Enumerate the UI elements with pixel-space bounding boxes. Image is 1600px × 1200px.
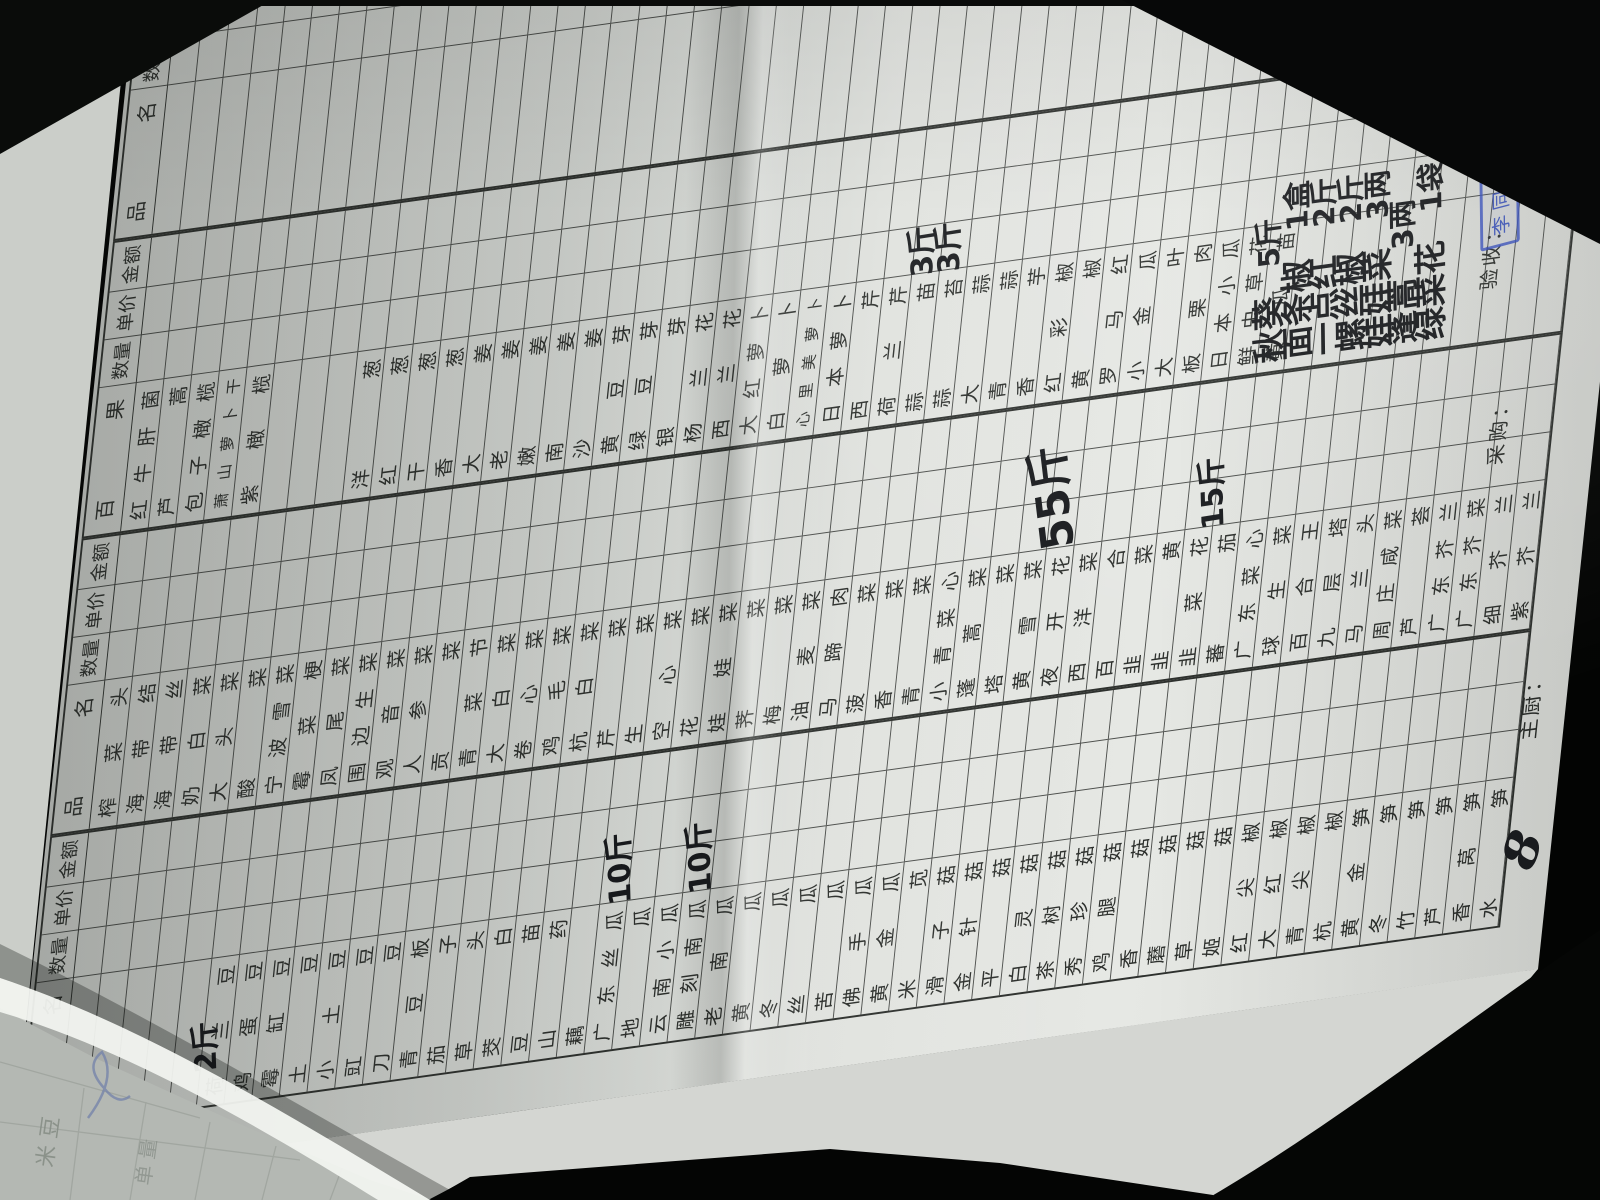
char: 药	[542, 917, 572, 941]
char: 菜	[186, 674, 216, 698]
char: 苗	[910, 280, 940, 304]
char: 菜	[269, 662, 299, 686]
char: 广	[1227, 638, 1257, 662]
char: 尖	[1284, 869, 1314, 893]
char: 洋	[344, 468, 374, 492]
item-price-cell	[1242, 716, 1274, 767]
item-qty-cell	[936, 512, 968, 563]
char: 豆	[210, 964, 240, 988]
char: 苦	[807, 989, 837, 1013]
char: 围	[340, 761, 370, 785]
char: 彩	[1042, 316, 1072, 340]
char: 豆	[398, 992, 428, 1016]
char: 额	[117, 244, 145, 267]
item-price-cell	[277, 557, 309, 608]
char: 金	[115, 263, 143, 286]
char: 观	[368, 757, 398, 781]
handwritten-quantity: 3斤	[934, 219, 965, 275]
char: 黄	[1005, 669, 1035, 693]
char: 菜	[1177, 590, 1207, 614]
char: 豆	[627, 374, 657, 398]
char: 空	[645, 719, 675, 743]
char: 荷	[870, 394, 900, 418]
char: 芹	[854, 288, 884, 312]
char: 蒿	[162, 384, 192, 408]
char: 价	[112, 292, 140, 315]
char: 生	[348, 688, 378, 712]
char: 芥	[1428, 537, 1458, 561]
char: 名	[131, 100, 162, 125]
char: 白	[568, 675, 598, 699]
char: 心	[934, 570, 964, 594]
char: 周	[1365, 619, 1395, 643]
char: 尾	[318, 710, 348, 734]
item-name-cell	[1565, 0, 1600, 37]
char: 菜	[324, 655, 354, 679]
char: 杭	[1306, 920, 1336, 944]
char: 小	[649, 939, 679, 963]
char: 罗	[1092, 363, 1122, 387]
char: 兰	[682, 366, 712, 390]
char: 针	[952, 915, 982, 939]
item-qty-cell	[608, 265, 640, 316]
char: 丝	[780, 993, 810, 1017]
char: 菜	[1072, 551, 1102, 575]
char: 蒜	[965, 272, 995, 296]
char: 豆	[265, 956, 295, 980]
char: 兰	[1515, 489, 1545, 513]
char: 马	[811, 696, 841, 720]
item-qty-cell	[1099, 783, 1131, 834]
handwritten-quantity: 55斤	[1024, 441, 1081, 554]
price-column-header: 单价	[105, 287, 146, 340]
char: 日	[815, 402, 845, 426]
char: 青	[981, 379, 1011, 403]
char: 马	[1098, 308, 1128, 332]
char: 瓜	[653, 902, 683, 926]
char: 青	[392, 1047, 422, 1071]
price-column-header: 单价	[136, 0, 177, 42]
char: 葱	[439, 346, 469, 370]
char: 鸡	[534, 734, 564, 758]
char: 菜	[767, 593, 797, 617]
char: 金	[1125, 304, 1155, 328]
char: 冬	[752, 997, 782, 1021]
char: 椒	[1262, 817, 1292, 841]
char: 菜	[1266, 524, 1296, 548]
char: 大	[953, 383, 983, 407]
char: 萝	[765, 355, 795, 379]
char: 霉	[254, 1066, 284, 1090]
item-price-cell	[969, 461, 1001, 512]
char: 果	[100, 398, 131, 423]
char: 椒	[1076, 257, 1106, 281]
char: 九	[1310, 626, 1340, 650]
char: 层	[1315, 571, 1345, 595]
char: 姬	[1195, 935, 1225, 959]
char: 东	[1230, 601, 1260, 625]
char: 椒	[1048, 261, 1078, 285]
char: 西	[1060, 661, 1090, 685]
qty-column-header: 数量	[131, 37, 172, 90]
char: 手	[841, 930, 871, 954]
char: 边	[344, 724, 374, 748]
char: 大	[1147, 356, 1177, 380]
item-qty-cell	[1518, 431, 1550, 482]
char: 豆	[599, 378, 629, 402]
char: 额	[55, 839, 83, 862]
char: 菇	[1068, 844, 1098, 868]
char: 瓜	[681, 898, 711, 922]
char: 大	[732, 414, 762, 438]
char: 菜	[740, 597, 770, 621]
char: 白	[487, 925, 517, 949]
char: 水	[1472, 897, 1502, 921]
char: 香	[1009, 375, 1039, 399]
char: 豆	[348, 944, 378, 968]
char: 洋	[1066, 606, 1096, 630]
char: 蒜	[898, 390, 928, 414]
char: 广	[586, 1020, 616, 1044]
item-price-cell	[494, 820, 526, 871]
char: 梗	[297, 659, 327, 683]
char: 量	[139, 43, 167, 66]
char: 葱	[356, 357, 386, 381]
qty-column-header: 数量	[37, 929, 78, 982]
char: 土	[281, 1063, 311, 1087]
char: 心	[512, 683, 542, 707]
char: 单	[79, 609, 107, 632]
char: 雪	[1011, 613, 1041, 637]
item-qty-cell	[390, 2, 422, 53]
char: 树	[1035, 903, 1065, 927]
item-price-cell	[1554, 86, 1586, 137]
char: 麦	[789, 644, 819, 668]
char: 凤	[313, 765, 343, 789]
char: 尖	[1229, 876, 1259, 900]
char: 嫩	[510, 444, 540, 468]
qty-column-header: 数量	[68, 632, 109, 685]
item-qty-cell	[279, 18, 311, 69]
char: 里	[793, 382, 818, 401]
char: 花	[1183, 535, 1213, 559]
item-price-cell	[221, 565, 253, 616]
char: 菇	[1124, 836, 1154, 860]
item-qty-cell	[462, 872, 494, 923]
char: 卜	[826, 292, 856, 316]
char: 菜	[1017, 558, 1047, 582]
char: 榄	[189, 380, 219, 404]
item-qty-cell	[881, 520, 913, 571]
char: 萝	[799, 324, 824, 343]
char: 蛋	[232, 1015, 262, 1039]
char: 红	[1036, 371, 1066, 395]
char: 名	[68, 695, 99, 720]
char: 荠	[728, 707, 758, 731]
item-price-cell	[332, 549, 364, 600]
item-price-cell	[1523, 384, 1555, 435]
char: 芹	[882, 284, 912, 308]
char: 带	[152, 733, 182, 757]
char: 荟	[1404, 504, 1434, 528]
char: 银	[649, 425, 679, 449]
char: 百	[1088, 657, 1118, 681]
char: 结	[130, 682, 160, 706]
char: 海	[119, 792, 149, 816]
char: 单	[48, 906, 76, 929]
char: 芋	[1020, 265, 1050, 289]
char: 菠	[839, 692, 869, 716]
char: 菇	[1013, 852, 1043, 876]
char: 佛	[835, 985, 865, 1009]
char: 菜	[435, 639, 465, 663]
char: 芦	[1393, 615, 1423, 639]
char: 丝	[158, 678, 188, 702]
char: 红	[122, 498, 152, 522]
char: 菌	[134, 388, 164, 412]
paper-sheet: 品 名数量单价金 额荷兰豆鸡蛋豆霉缸豆土豆小土豆豇豆刀豆青豆板茄子草头茭白豆苗山…	[10, 0, 1600, 1182]
char: 缸	[259, 1011, 289, 1035]
char: 奶	[174, 784, 204, 808]
char: 西	[843, 398, 873, 422]
table-row	[1565, 0, 1600, 37]
char: 萝	[739, 340, 769, 364]
char: 栗	[1181, 297, 1211, 321]
char: 小	[1119, 360, 1149, 384]
char: 瓜	[764, 887, 794, 911]
order-table: 品 名数量单价金 额荷兰豆鸡蛋豆霉缸豆土豆小土豆豇豆刀豆青豆板茄子草头茭白豆苗山…	[19, 0, 1600, 1134]
char: 紫	[1503, 599, 1533, 623]
item-qty-cell	[663, 257, 695, 308]
char: 瓜	[708, 894, 738, 918]
char: 红	[372, 464, 402, 488]
char: 金	[1339, 861, 1369, 885]
char: 蹄	[817, 640, 847, 664]
char: 鸡	[226, 1070, 256, 1094]
char: 菜	[961, 566, 991, 590]
char: 地	[614, 1016, 644, 1040]
char: 白	[180, 729, 210, 753]
char: 百	[1282, 630, 1312, 654]
amount-column-header: 金 额	[110, 238, 151, 292]
char: 菜	[629, 612, 659, 636]
char: 菇	[1151, 833, 1181, 857]
char: 干	[220, 377, 245, 396]
char: 参	[402, 698, 432, 722]
char: 花	[1044, 554, 1074, 578]
char: 豆	[293, 952, 323, 976]
char: 菜	[457, 691, 487, 715]
char: 韭	[1143, 649, 1173, 673]
char: 头	[459, 929, 489, 953]
char: 开	[1039, 610, 1069, 634]
char: 日	[1203, 348, 1233, 372]
item-qty-cell	[406, 879, 438, 930]
char: 带	[125, 737, 155, 761]
char: 花	[716, 307, 746, 331]
char: 瓜	[598, 910, 628, 934]
char: 土	[315, 1004, 345, 1028]
char: 数	[74, 656, 102, 679]
handwritten-item-name: 绿菜花	[1404, 238, 1452, 344]
char: 红	[1103, 253, 1133, 277]
char: 青	[451, 746, 481, 770]
char: 雪	[265, 699, 295, 723]
char: 金	[946, 970, 976, 994]
handwritten-item-qty: 1袋	[1407, 160, 1450, 215]
char: 夜	[1033, 665, 1063, 689]
char: 娃	[700, 711, 730, 735]
char: 头	[103, 686, 133, 710]
char: 瓜	[874, 871, 904, 895]
char: 山	[530, 1028, 560, 1052]
char: 笋	[1484, 786, 1514, 810]
char: 南	[538, 441, 568, 465]
char: 芦	[150, 495, 180, 519]
char: 卜	[217, 405, 242, 424]
char: 花	[673, 715, 703, 739]
item-qty-cell	[1209, 767, 1241, 818]
qty-column-header: 数量	[100, 334, 141, 387]
char: 青	[894, 684, 924, 708]
char: 菜	[795, 589, 825, 613]
item-price-cell	[1187, 723, 1219, 774]
char: 南	[677, 935, 707, 959]
char: 酸	[230, 777, 260, 801]
char: 单	[142, 14, 170, 37]
char: 姜	[522, 334, 552, 358]
char: 王	[1294, 520, 1324, 544]
char: 小	[1210, 274, 1240, 298]
char: 头	[208, 725, 238, 749]
char: 蒿	[955, 621, 985, 645]
char: 橄	[239, 428, 269, 452]
char: 刻	[673, 972, 703, 996]
char: 马	[1337, 622, 1367, 646]
char: 菜	[878, 578, 908, 602]
char: 卜	[771, 299, 801, 323]
char: 卷	[506, 738, 536, 762]
char: 蒜	[993, 268, 1023, 292]
char: 菇	[958, 860, 988, 884]
char: 萝	[214, 434, 239, 453]
handwritten-quantity: 15斤	[1197, 455, 1229, 531]
char: 塔	[1321, 516, 1351, 540]
char: 滑	[918, 974, 948, 998]
char: 笋	[1373, 802, 1403, 826]
char: 波	[261, 736, 291, 760]
char: 绿	[621, 429, 651, 453]
char: 椒	[1318, 809, 1348, 833]
char: 菇	[1207, 825, 1237, 849]
item-qty-cell	[825, 528, 857, 579]
char: 葱	[383, 353, 413, 377]
char: 毛	[540, 679, 570, 703]
char: 豇	[337, 1055, 367, 1079]
char: 菜	[1234, 564, 1264, 588]
item-qty-cell	[1154, 775, 1186, 826]
item-price-cell	[550, 812, 582, 863]
char: 笋	[1401, 798, 1431, 822]
char: 姜	[494, 338, 524, 362]
char: 卜	[743, 303, 773, 327]
char: 青	[1278, 924, 1308, 948]
char: 草	[1167, 939, 1197, 963]
char: 芽	[633, 319, 663, 343]
char: 葱	[411, 349, 441, 373]
char: 白	[485, 687, 515, 711]
item-price-cell	[1333, 117, 1365, 168]
char: 荷	[198, 1074, 228, 1098]
char: 大	[1251, 928, 1281, 952]
char: 兰	[1343, 567, 1373, 591]
char: 菇	[1179, 829, 1209, 853]
char: 大	[479, 742, 509, 766]
char: 草	[447, 1039, 477, 1063]
char: 数	[43, 954, 71, 977]
char: 姜	[577, 326, 607, 350]
char: 花	[688, 311, 718, 335]
char: 椒	[1234, 821, 1264, 845]
char: 韭	[1171, 646, 1201, 670]
char: 瓜	[847, 875, 877, 899]
char: 黄	[593, 433, 623, 457]
char: 藕	[558, 1024, 588, 1048]
item-qty-cell	[552, 273, 584, 324]
char: 米	[890, 978, 920, 1002]
char: 白	[759, 410, 789, 434]
char: 心	[790, 410, 815, 429]
char: 宁	[257, 773, 287, 797]
char: 豆	[503, 1032, 533, 1056]
char: 本	[1206, 311, 1236, 335]
item-price-cell	[696, 206, 728, 257]
char: 塔	[977, 673, 1007, 697]
photo-of-order-form: { "form": { "column_headers": ["品 名", "数…	[0, 0, 1600, 1200]
approval-stamp: 李同仁	[1479, 142, 1520, 251]
char: 南	[702, 950, 732, 974]
char: 金	[53, 858, 81, 881]
char: 雕	[669, 1009, 699, 1033]
amount-column-header: 金 额	[47, 833, 88, 887]
char: 菜	[490, 632, 520, 656]
char: 刀	[364, 1051, 394, 1075]
char: 小	[922, 680, 952, 704]
char: 贡	[423, 750, 453, 774]
char: 苋	[902, 867, 932, 891]
char: 霉	[285, 769, 315, 793]
char: 头	[1349, 512, 1379, 536]
char: 红	[1256, 872, 1286, 896]
char: 老	[482, 448, 512, 472]
char: 老	[697, 1005, 727, 1029]
char: 肉	[823, 585, 853, 609]
char: 价	[81, 590, 109, 613]
char: 板	[404, 937, 434, 961]
char: 竹	[1389, 908, 1419, 932]
char: 百	[89, 497, 120, 522]
char: 金	[84, 561, 112, 584]
char: 萝	[823, 328, 853, 352]
char: 芦	[1417, 904, 1447, 928]
char: 瓜	[1214, 238, 1244, 262]
char: 美	[796, 353, 821, 372]
char: 香	[1112, 947, 1142, 971]
handwritten-quantity: 10斤	[685, 819, 717, 895]
amount-column-header: 金 额	[78, 535, 119, 589]
char: 额	[86, 541, 114, 564]
char: 珍	[1062, 899, 1092, 923]
